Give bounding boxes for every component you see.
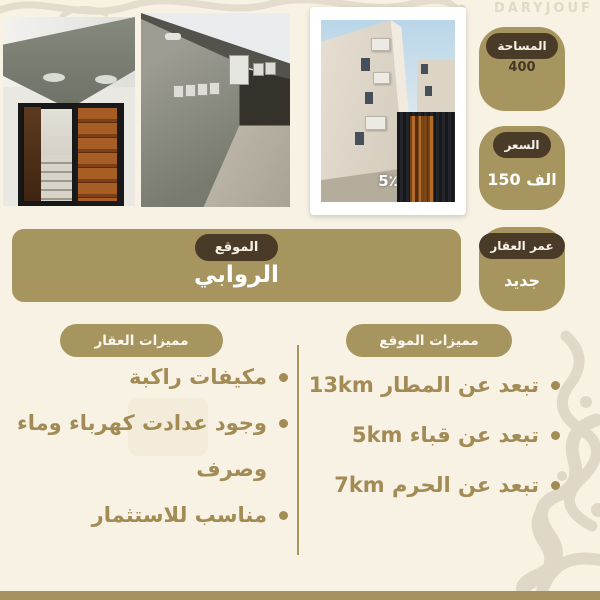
real-estate-flyer: DARYJOUF — [0, 0, 600, 600]
bottom-accent-bar — [0, 591, 600, 600]
window — [365, 92, 373, 104]
window — [425, 86, 432, 96]
ac-unit — [373, 72, 390, 84]
downlight — [43, 73, 65, 82]
photo-overlay-label: 5٪ — [321, 172, 455, 190]
bullet-icon — [279, 511, 288, 520]
feature-text: تبعد عن المطار 13km — [309, 360, 539, 410]
bullet-icon — [551, 481, 560, 490]
badge-area-label: المساحة — [486, 33, 557, 59]
badge-price: السعر الف 150 — [479, 126, 565, 210]
feature-text: تبعد عن قباء 5km — [352, 410, 539, 460]
feature-text: وجود عدادت كهرباء وماء وصرف — [10, 400, 267, 492]
list-item: تبعد عن الحرم 7km — [308, 460, 560, 510]
badge-property-age: عمر العقار جديد — [479, 227, 565, 311]
badge-property-age-value: جديد — [504, 271, 540, 290]
badge-price-value: الف 150 — [487, 170, 557, 189]
feature-text: تبعد عن الحرم 7km — [334, 460, 539, 510]
location-value: الروابي — [12, 262, 461, 288]
brand-watermark: DARYJOUF — [494, 1, 593, 16]
location-label: الموقع — [195, 234, 279, 261]
photo-building-frame: 5٪ — [310, 7, 466, 215]
badge-area: المساحة 400 — [479, 27, 565, 111]
meter — [197, 83, 208, 96]
list-item: وجود عدادت كهرباء وماء وصرف — [10, 400, 288, 492]
list-item: تبعد عن قباء 5km — [308, 410, 560, 460]
open-door-leaf — [22, 107, 41, 201]
ac-unit — [365, 116, 386, 130]
bullet-icon — [551, 381, 560, 390]
location-features-title: مميزات الموقع — [346, 324, 512, 357]
wooden-door — [75, 105, 120, 204]
window — [355, 132, 364, 145]
photo-side-alley — [141, 13, 290, 207]
bullet-icon — [279, 373, 288, 382]
property-features-title: مميزات العقار — [60, 324, 223, 357]
meter — [265, 62, 276, 75]
wall-lamp — [165, 33, 181, 40]
window — [421, 64, 428, 74]
electrical-box — [229, 55, 249, 85]
feature-text: مناسب للاستثمار — [92, 492, 267, 538]
list-item: مكيفات راكبة — [10, 354, 288, 400]
vertical-divider — [297, 345, 299, 555]
property-features-list: مكيفات راكبة وجود عدادت كهرباء وماء وصرف… — [10, 354, 288, 538]
badge-area-value: 400 — [508, 60, 535, 75]
list-item: مناسب للاستثمار — [10, 492, 288, 538]
feature-text: مكيفات راكبة — [129, 354, 267, 400]
badge-price-label: السعر — [493, 132, 550, 158]
badge-property-age-label: عمر العقار — [479, 233, 564, 259]
meter — [173, 85, 184, 98]
bullet-icon — [551, 431, 560, 440]
ac-unit — [371, 38, 390, 51]
location-box: الموقع الروابي — [12, 229, 461, 302]
meter — [185, 84, 196, 97]
bullet-icon — [279, 419, 288, 428]
meter — [253, 63, 264, 76]
meter — [209, 82, 220, 95]
location-features-list: تبعد عن المطار 13km تبعد عن قباء 5km تبع… — [308, 360, 560, 510]
photo-building-exterior: 5٪ — [321, 20, 455, 202]
list-item: تبعد عن المطار 13km — [308, 360, 560, 410]
downlight — [95, 75, 117, 84]
window — [361, 58, 370, 71]
photo-entrance — [3, 17, 135, 206]
